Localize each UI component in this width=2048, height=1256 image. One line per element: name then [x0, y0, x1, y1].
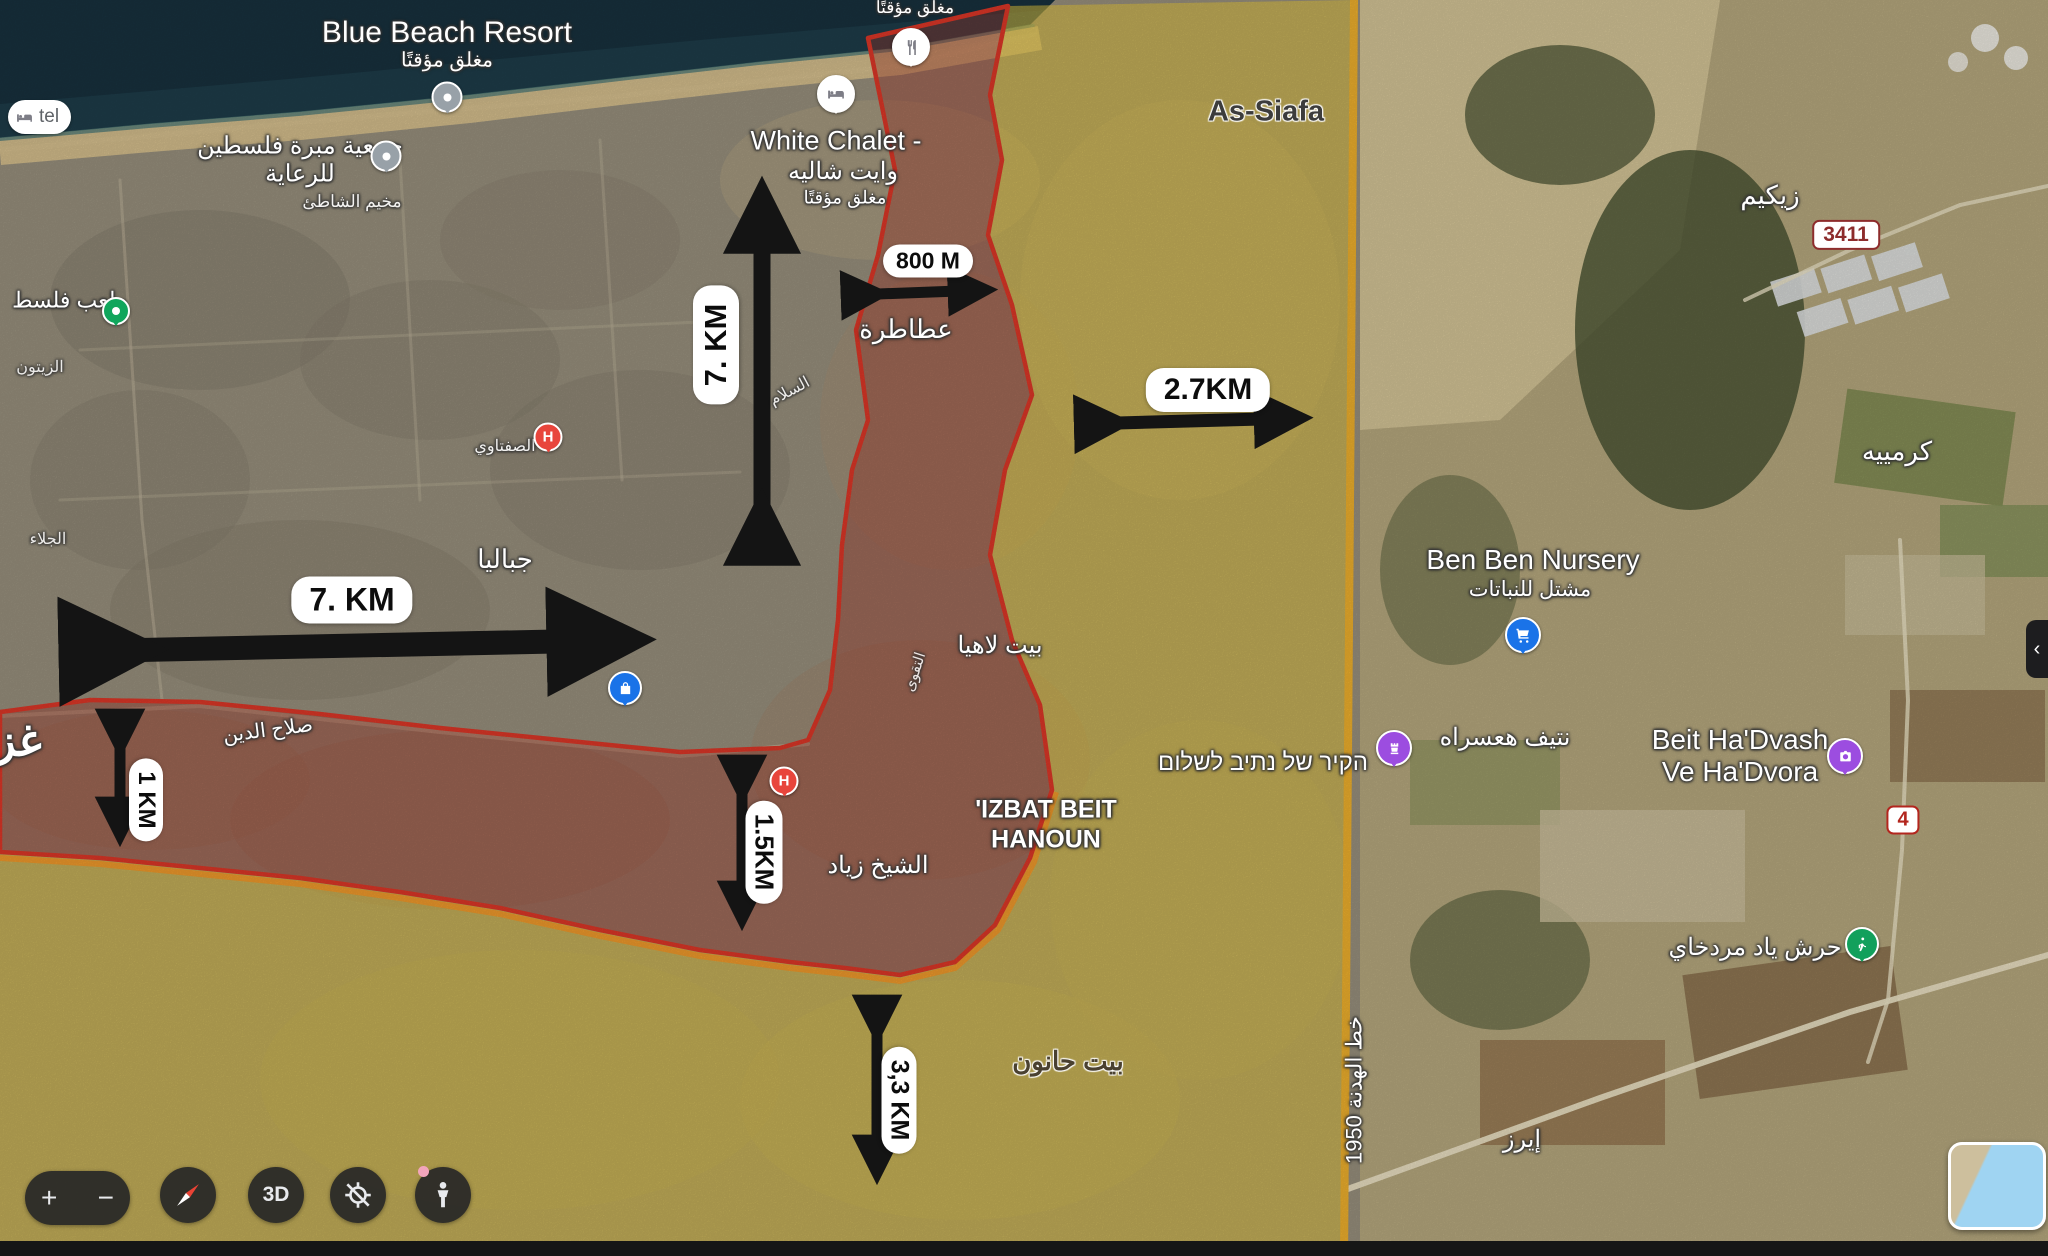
restaurant-pin[interactable] [892, 28, 930, 66]
compass-button[interactable] [160, 1167, 216, 1223]
hotel-pin[interactable] [817, 75, 855, 113]
label-white-chalet-en: White Chalet - [750, 125, 921, 156]
label-erez: إيرز [1503, 1126, 1541, 1154]
label-blue-beach-status: مغلق مؤقتًا [401, 50, 493, 73]
minimap-inset[interactable] [1948, 1142, 2046, 1230]
bed-icon [16, 109, 33, 126]
label-yad-mordechai-grove: حرش ياد مردخاي [1668, 934, 1841, 962]
nursery-cart-pin[interactable] [1505, 617, 1541, 653]
arrow-7km-horizontal [140, 640, 628, 650]
label-zikim: زيكيم [1740, 181, 1799, 211]
pin-dot-icon [382, 152, 390, 160]
label-beit-lahia: بيت لاهيا [957, 632, 1042, 660]
label-armistice-line-1950: خط الهدنة 1950 [1341, 1016, 1366, 1164]
3d-button[interactable]: 3D [248, 1167, 304, 1223]
rook-icon [1387, 741, 1402, 756]
bed-icon [827, 85, 845, 103]
label-karmiya: كرمييه [1862, 437, 1932, 467]
shopping-bag-icon [618, 681, 633, 696]
measurement-label-7km-horizontal: 7. KM [291, 577, 412, 624]
pin-dot-icon [443, 93, 451, 101]
label-zeitoun: الزيتون [16, 359, 63, 377]
label-ben-ben-nursery: Ben Ben Nursery [1426, 544, 1639, 576]
label-beit-hadvash-line1: Beit Ha'Dvash [1652, 724, 1829, 756]
hotel-chip-label: tel [39, 106, 59, 128]
historic-rook-pin[interactable] [1376, 730, 1412, 766]
camera-icon [1838, 749, 1853, 764]
hiker-icon [1855, 937, 1870, 952]
zoom-in-button[interactable]: + [41, 1184, 57, 1212]
hospital-h-icon: H [779, 773, 790, 790]
pin-dot-icon [112, 307, 120, 315]
label-atatra: عطاطرة [859, 315, 952, 345]
route-badge-4: 4 [1886, 806, 1919, 835]
label-netiv-haasara: نتيف هعسراه [1440, 724, 1571, 752]
label-izbat-line2: HANOUN [991, 826, 1101, 855]
measurement-label-3-3km: 3,3 KM [882, 1047, 917, 1154]
measurement-label-1km: 1 KM [129, 758, 163, 841]
hospital-pin-sheikh-zayed[interactable]: H [770, 767, 799, 796]
label-shati-camp: مخيم الشاطئ [302, 192, 401, 212]
stadium-pin[interactable] [102, 297, 130, 325]
shopping-bag-pin[interactable] [608, 671, 642, 705]
measurement-label-2-7km: 2.7KM [1146, 368, 1270, 412]
measurement-label-1-5km: 1.5KM [746, 801, 783, 904]
location-disabled-icon [343, 1180, 373, 1210]
shopping-cart-icon [1515, 627, 1531, 643]
zoom-control[interactable]: + − [25, 1171, 130, 1225]
side-panel-tab[interactable]: ‹ [2026, 620, 2048, 678]
hospital-pin-north[interactable]: H [534, 423, 563, 452]
route-badge-3411: 3411 [1812, 220, 1880, 250]
label-white-chalet-status: مغلق مؤقتًا [804, 188, 887, 209]
my-location-off-button[interactable] [330, 1167, 386, 1223]
label-blue-beach-resort: Blue Beach Resort [322, 16, 572, 51]
measurement-label-7km-vertical: 7. KM [693, 286, 739, 405]
map-viewport[interactable]: 7. KM 800 M 2.7KM 7. KM 1 KM 1.5KM 3,3 K… [0, 0, 2048, 1256]
hiking-trail-pin[interactable] [1845, 927, 1879, 961]
label-top-closed-status: مغلق مؤقتًا [876, 0, 954, 18]
label-ben-ben-ar: مشتل للنباتات [1469, 578, 1592, 602]
restaurant-icon [903, 39, 920, 56]
hospital-h-icon: H [543, 429, 554, 446]
photo-camera-pin[interactable] [1827, 738, 1863, 774]
pegman-notification-dot [418, 1166, 429, 1177]
label-saftawi: الصفتاوي [474, 438, 535, 456]
arrow-2-7km [1118, 418, 1298, 423]
label-izbat-line1: 'IZBAT BEIT [975, 796, 1117, 825]
compass-needle-icon [173, 1180, 203, 1210]
zoom-out-button[interactable]: − [98, 1184, 114, 1212]
chevron-left-icon: ‹ [2034, 638, 2041, 661]
3d-button-label: 3D [263, 1183, 290, 1207]
pegman-icon [429, 1181, 457, 1209]
hotel-chip-partial[interactable]: tel [8, 100, 71, 134]
poi-pin-blue-beach[interactable] [432, 82, 463, 113]
label-jalaa: الجلاء [30, 531, 67, 549]
measurement-label-800m: 800 M [883, 245, 973, 278]
label-beit-hadvash-line2: Ve Ha'Dvora [1662, 756, 1818, 788]
label-sheikh-zayed: الشيخ زياد [827, 852, 928, 880]
arrow-800m [878, 290, 985, 294]
label-as-siafa: As-Siafa [1208, 95, 1324, 128]
label-wall-hebrew: הקיר של נתיב לשלום [1158, 749, 1368, 777]
label-beit-hanoun: بيت حانون [1012, 1047, 1124, 1077]
bottom-bar [0, 1241, 2048, 1256]
poi-pin-charity[interactable] [371, 141, 402, 172]
label-jabalia: جباليا [477, 545, 533, 575]
label-gaza-partial: غز [0, 717, 42, 768]
label-white-chalet-ar: وايت شاليه [788, 158, 898, 186]
